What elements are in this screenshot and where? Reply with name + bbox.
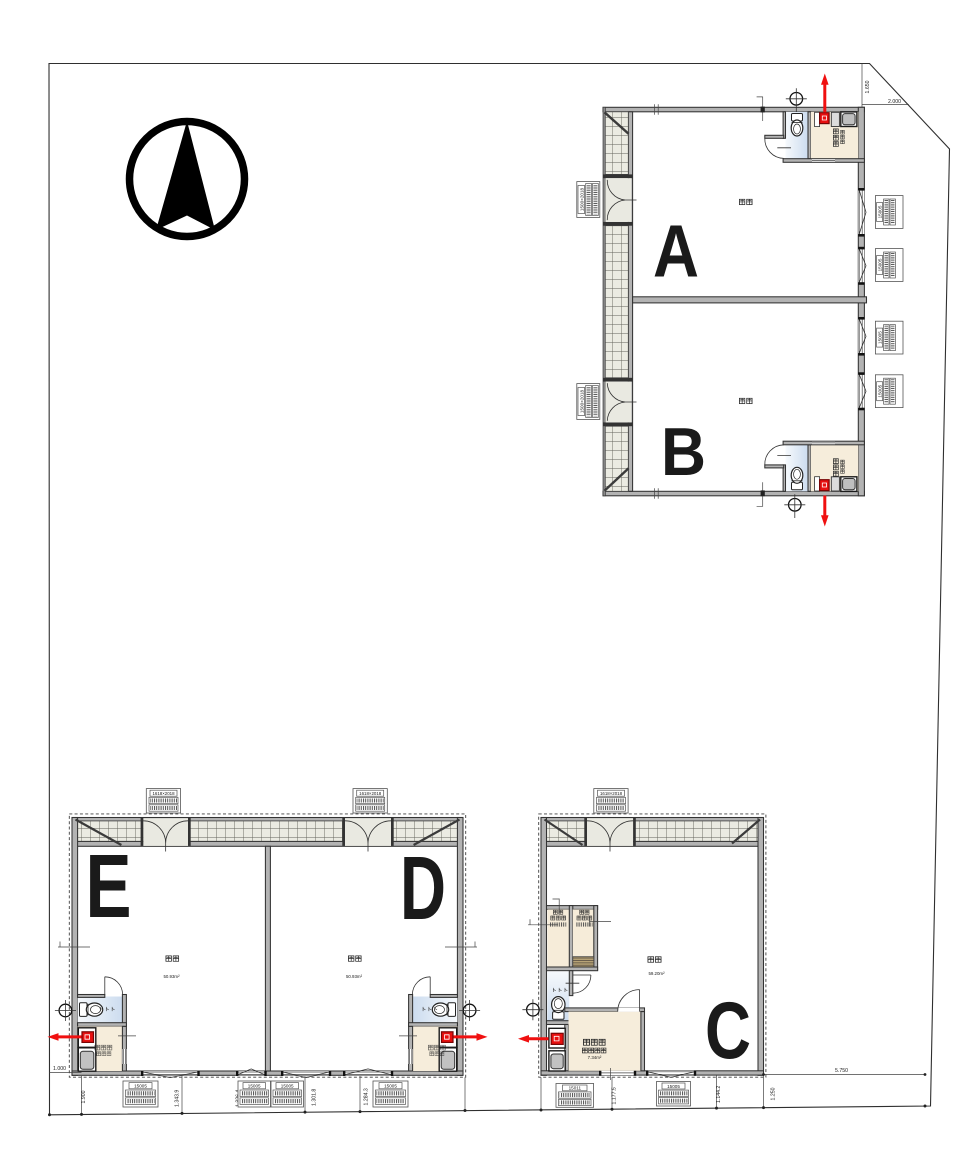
svg-text:A: A <box>653 210 699 293</box>
svg-text:1.301.8: 1.301.8 <box>312 1089 318 1106</box>
svg-text:15005: 15005 <box>667 1084 680 1089</box>
svg-text:7.34m²: 7.34m² <box>588 1055 602 1060</box>
svg-text:50.93m²: 50.93m² <box>163 974 180 979</box>
svg-text:C: C <box>705 986 751 1076</box>
svg-text:15005: 15005 <box>877 205 882 218</box>
svg-text:59.20m²: 59.20m² <box>648 971 665 976</box>
svg-text:1618×2018: 1618×2018 <box>152 791 175 796</box>
svg-text:1.177.5: 1.177.5 <box>612 1087 618 1104</box>
svg-text:1.250: 1.250 <box>771 1087 777 1100</box>
svg-text:15011: 15011 <box>569 1086 582 1091</box>
svg-text:15005: 15005 <box>877 331 882 344</box>
svg-text:1.284.3: 1.284.3 <box>364 1088 370 1105</box>
svg-text:B: B <box>661 414 706 490</box>
svg-text:E: E <box>86 837 132 937</box>
svg-text:1.144.2: 1.144.2 <box>716 1086 722 1103</box>
svg-text:15005: 15005 <box>877 258 882 271</box>
svg-text:1.900: 1.900 <box>81 1090 87 1103</box>
svg-text:15005: 15005 <box>134 1084 147 1089</box>
svg-text:15005: 15005 <box>248 1084 261 1089</box>
svg-text:2.000: 2.000 <box>888 99 901 105</box>
svg-text:1.650: 1.650 <box>865 80 871 93</box>
svg-text:1.343.9: 1.343.9 <box>175 1090 181 1107</box>
svg-text:1618×2018: 1618×2018 <box>600 791 623 796</box>
svg-text:1.000: 1.000 <box>53 1066 66 1072</box>
svg-text:1618×2018: 1618×2018 <box>359 791 382 796</box>
svg-text:5.750: 5.750 <box>835 1068 848 1074</box>
svg-text:D: D <box>400 839 446 939</box>
svg-text:15005: 15005 <box>281 1084 294 1089</box>
svg-text:15005: 15005 <box>384 1084 397 1089</box>
svg-text:50.93m²: 50.93m² <box>346 974 363 979</box>
svg-text:15005: 15005 <box>877 384 882 397</box>
svg-text:1500×2018: 1500×2018 <box>579 389 584 413</box>
svg-text:1500×2018: 1500×2018 <box>579 187 584 211</box>
